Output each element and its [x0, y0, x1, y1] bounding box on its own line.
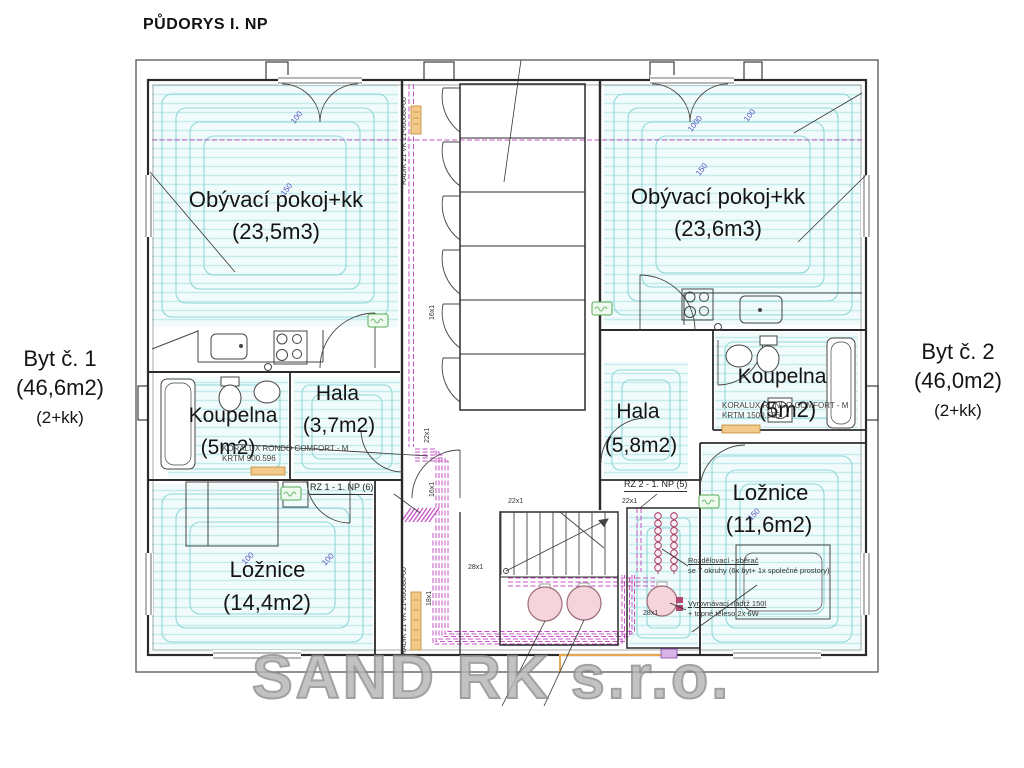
room-bedroom1-area: (14,4m2): [198, 589, 336, 617]
room-bath2-name: Koupelna: [722, 364, 842, 390]
apartment1-area: (46,6m2): [0, 374, 120, 402]
tank-note-line2: + topné těleso 2x 6W: [688, 609, 759, 618]
page-title: PŮDORYS I. NP: [143, 16, 268, 34]
pipe-crossing-marks: [401, 508, 439, 522]
watermark: SAND RK s.r.o.: [252, 642, 731, 712]
manifold-note-line2: se 7 okruhy (6x byt+ 1x společné prostor…: [688, 566, 830, 575]
manifold-note-line1: Rozdělovací - sběrač: [688, 556, 758, 565]
pipe-label-28x1-a: 28x1: [468, 564, 483, 573]
apartment1-name: Byt č. 1: [8, 345, 112, 373]
pipe-label-22x1-v: 22x1: [424, 428, 433, 443]
apartment2-area: (46,0m2): [895, 367, 1021, 395]
apartment2-name: Byt č. 2: [906, 338, 1010, 366]
radiator2-model-line1: KORALUX RONDO COMFORT - M: [722, 401, 882, 411]
radiator2-model-line2: KRTM 1500.596: [722, 411, 882, 421]
rz2-label: RZ 2 - 1. NP (5): [624, 479, 687, 492]
room-hall2-name: Hala: [598, 399, 678, 425]
pipe-label-28x1-b: 28x1: [643, 610, 658, 619]
room-living2-name: Obývací pokoj+kk: [602, 183, 834, 211]
room-bedroom2-area: (11,6m2): [703, 511, 835, 539]
pipe-label-22x1-b: 22x1: [622, 498, 637, 507]
floorplan-page: PŮDORYS I. NP Byt č. 1 (46,6m2) (2+kk) B…: [0, 0, 1024, 768]
room-living2-area: (23,6m3): [602, 215, 834, 243]
tank-note-line1: Vyrovnávací nádrž 150l: [688, 599, 766, 608]
radiator1-model-line1: KORALUX RONDO COMFORT - M: [222, 444, 382, 454]
pipe-label-16x1-a: 16x1: [429, 305, 438, 320]
pipe-label-22x1-a: 22x1: [508, 498, 523, 507]
buffer-tanks: [528, 582, 683, 621]
radik-label-top: RADIK 21 VK 21-060080-60: [401, 97, 410, 185]
room-bedroom1-name: Ložnice: [210, 556, 325, 584]
radiator1-model-line2: KRTM 900.596: [222, 454, 382, 464]
pipe-label-16x1-b: 16x1: [429, 482, 438, 497]
room-living1-name: Obývací pokoj+kk: [160, 186, 392, 214]
room-hall1-area: (3,7m2): [283, 413, 395, 439]
room-bedroom2-name: Ložnice: [718, 479, 823, 507]
staircase: [501, 512, 618, 575]
apartment2-disposition: (2+kk): [912, 400, 1004, 421]
room-bath1-name: Koupelna: [163, 403, 303, 429]
room-living1-area: (23,5m3): [160, 218, 392, 246]
apartment1-disposition: (2+kk): [14, 407, 106, 428]
pipe-label-18x1: 18x1: [426, 591, 435, 606]
room-hall2-area: (5,8m2): [586, 433, 696, 459]
room-hall1-name: Hala: [295, 381, 380, 407]
rz1-label: RZ 1 - 1. NP (6): [310, 482, 373, 495]
